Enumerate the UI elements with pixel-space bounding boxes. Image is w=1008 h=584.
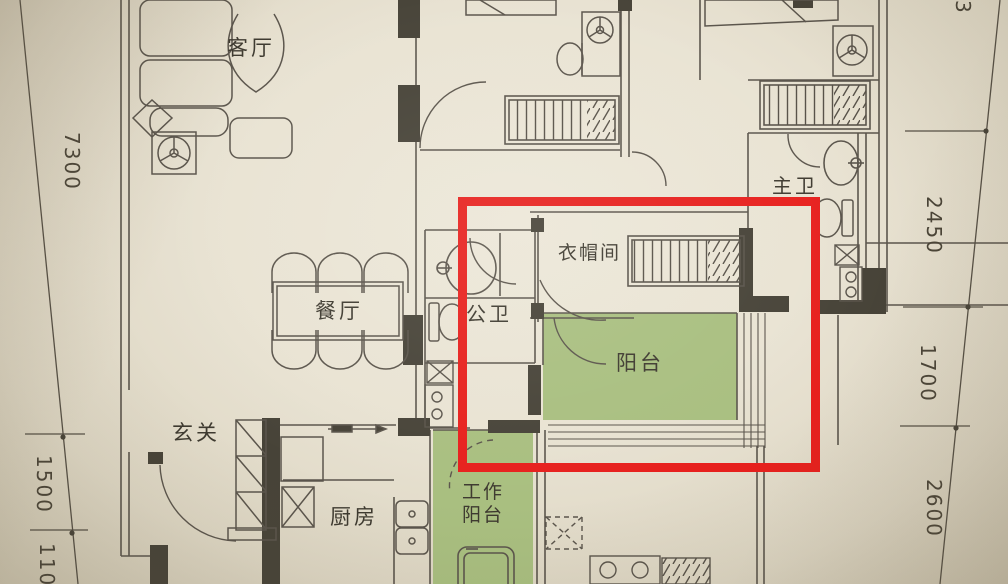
bed-foot (466, 0, 556, 15)
wardrobe-bedroom2 (760, 81, 870, 129)
public-bath-shaft (425, 361, 453, 427)
wardrobe-bedroom1 (505, 96, 619, 144)
stove-units (590, 556, 710, 584)
dim-left-7300: 7300 (60, 132, 84, 191)
bedroom-door-arc (420, 82, 486, 148)
nightstand-lamp (833, 26, 873, 76)
desk (557, 12, 620, 76)
room-label-work-balcony: 工作 阳台 (462, 481, 504, 527)
room-label-entry: 玄关 (172, 421, 220, 447)
entry-door-arc (160, 465, 236, 541)
kitchen-cabinet (281, 437, 323, 527)
room-label-dining: 餐厅 (315, 299, 363, 325)
highlight-rectangle (458, 197, 820, 472)
dim-right-1700: 1700 (916, 344, 940, 403)
dim-left-1500: 1500 (32, 455, 56, 514)
bed-top-right (705, 0, 838, 26)
shaft-dashed-x (546, 517, 582, 549)
coffee-table (230, 118, 292, 158)
vent-arrow-icon (328, 425, 386, 433)
room-label-living: 客厅 (227, 36, 275, 62)
dim-right-2450: 2450 (922, 196, 946, 255)
dim-left-1100: 1100 (35, 543, 59, 584)
dim-right-3: 3 (951, 0, 975, 15)
dim-right-2600: 2600 (922, 479, 946, 538)
plant-icon (152, 132, 196, 174)
kitchen-sink (396, 501, 428, 554)
floorplan-photo: 客厅 餐厅 玄关 厨房 工作 阳台 公卫 衣帽间 阳台 主卫 7300 1500… (0, 0, 1008, 584)
room-label-kitchen: 厨房 (330, 505, 378, 531)
room-label-master-bath: 主卫 (772, 174, 818, 198)
sofa (140, 0, 232, 136)
master-bath-door-arc (788, 134, 820, 167)
hall-door-arc (632, 152, 666, 186)
